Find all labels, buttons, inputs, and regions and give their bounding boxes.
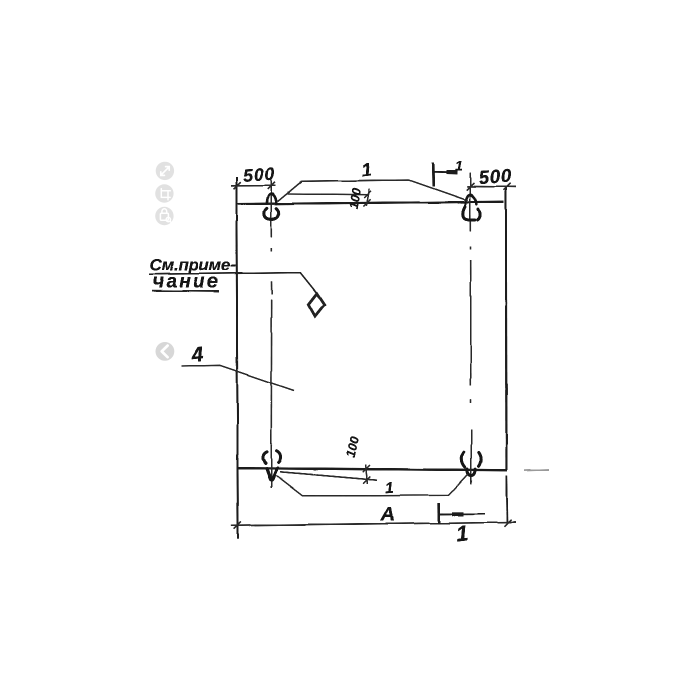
svg-text:А: А <box>380 503 396 526</box>
svg-text:1: 1 <box>455 520 470 546</box>
svg-text:1: 1 <box>455 158 463 174</box>
svg-text:1: 1 <box>360 159 373 181</box>
svg-text:500: 500 <box>242 164 276 186</box>
svg-text:100: 100 <box>344 435 362 458</box>
svg-text:500: 500 <box>478 166 513 189</box>
svg-text:чание: чание <box>153 270 221 292</box>
svg-text:4: 4 <box>190 343 205 367</box>
svg-text:100: 100 <box>347 187 364 210</box>
svg-text:1: 1 <box>385 480 395 498</box>
